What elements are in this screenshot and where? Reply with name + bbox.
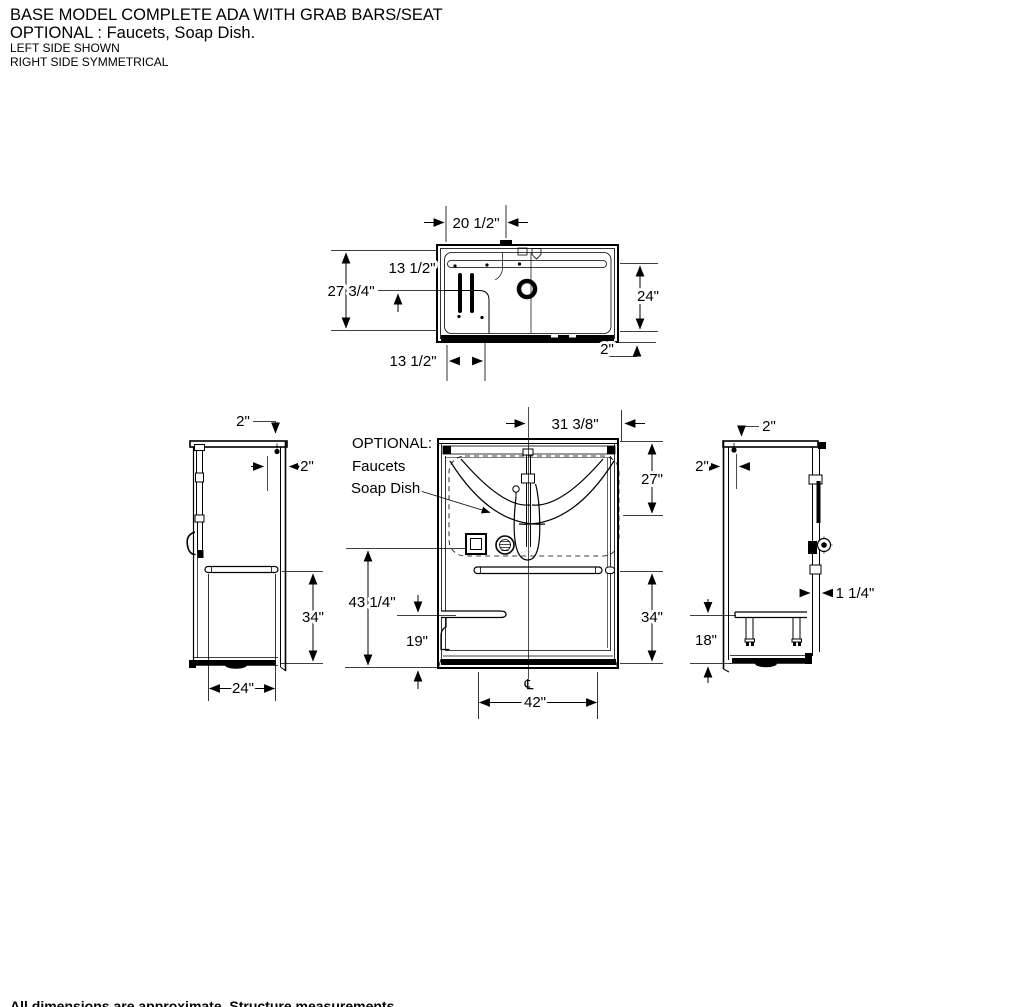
faucet-valve-icon <box>466 534 486 554</box>
dim-left-bar-offset: 2" <box>300 458 314 475</box>
footnote: All dimensions are approximate. Structur… <box>10 966 394 1007</box>
plan-seat-slot <box>458 273 462 313</box>
grab-bar-return <box>606 567 615 574</box>
bar-mount-dot <box>274 449 279 454</box>
soap-dish-icon <box>496 536 514 554</box>
plan-threshold <box>441 335 614 341</box>
seat-support <box>745 618 755 647</box>
technical-drawing: 20 1/2" 27 3/4" 13 1/2" 24" 2" 13 1/2" <box>0 0 1024 1007</box>
soap-dish-leader <box>414 489 490 513</box>
dim-plan-seat-depth: 13 1/2" <box>388 260 435 277</box>
dim-plan-seat-width: 13 1/2" <box>389 353 436 370</box>
fold-seat <box>441 611 506 618</box>
dim-right-bar-offset: 2" <box>695 458 709 475</box>
dim-left-top-ledge: 2" <box>236 413 250 430</box>
hand-shower-icon <box>513 486 519 492</box>
plan-faucet-tab <box>500 240 512 246</box>
curtain-drape-arc <box>519 461 614 524</box>
dim-front-bar-height: 34" <box>641 609 663 626</box>
plan-shower-outlet <box>532 249 541 260</box>
plan-seat-slot <box>470 273 474 313</box>
dim-left-bar-height: 34" <box>302 609 324 626</box>
grab-bar-side <box>205 567 278 573</box>
right-side-view: 2" 2" 1 1/4" 18" <box>690 418 874 683</box>
dim-plan-threshold: 2" <box>600 341 614 358</box>
dim-right-top-ledge: 2" <box>762 418 776 435</box>
hand-shower-side <box>198 550 204 558</box>
plan-back-ledge <box>448 261 607 268</box>
dim-front-half-width: 31 3/8" <box>551 416 598 433</box>
drawing-page: BASE MODEL COMPLETE ADA WITH GRAB BARS/S… <box>0 0 1024 1007</box>
dim-plan-faucet-offset: 20 1/2" <box>452 215 499 232</box>
bar-mount-dot <box>731 447 736 452</box>
optional-label-3: Soap Dish <box>351 480 420 497</box>
dim-right-seat-height: 18" <box>695 632 717 649</box>
plan-seat-edge <box>444 291 489 334</box>
dim-front-opening-width: 42" <box>524 694 546 711</box>
soap-ledge-profile <box>187 532 195 555</box>
optional-label-2: Faucets <box>352 458 405 475</box>
dim-right-bar-standoff: 1 1/4" <box>836 585 875 602</box>
dim-front-valve-height: 43 1/4" <box>348 594 395 611</box>
dim-plan-basin-depth: 24" <box>637 288 659 305</box>
footnote-line-1: All dimensions are approximate. Structur… <box>10 998 394 1007</box>
rail-slider <box>810 565 821 574</box>
dim-front-top-to-valve: 27" <box>641 471 663 488</box>
plan-view: 20 1/2" 27 3/4" 13 1/2" 24" 2" 13 1/2" <box>327 205 659 381</box>
centerline-symbol: ℄ <box>524 676 534 692</box>
front-view: ℄ OPTIONAL: Faucets Soap Dish 31 3/8" 27… <box>345 407 663 719</box>
shower-head-icon <box>523 449 533 455</box>
dim-front-seat-height: 19" <box>406 633 428 650</box>
optional-label-1: OPTIONAL: <box>352 435 432 452</box>
dim-left-depth: 24" <box>232 680 254 697</box>
slide-bar-bracket <box>522 474 535 483</box>
right-top-ledge <box>723 441 818 447</box>
grab-bar <box>474 567 602 574</box>
shower-rail-edge <box>817 481 821 523</box>
drain-bump <box>225 661 247 669</box>
drain-icon <box>519 281 535 297</box>
left-side-view: 2" 2" 34" 24" <box>187 413 324 701</box>
dim-plan-overall-depth: 27 3/4" <box>327 283 374 300</box>
seat-support <box>792 618 802 647</box>
